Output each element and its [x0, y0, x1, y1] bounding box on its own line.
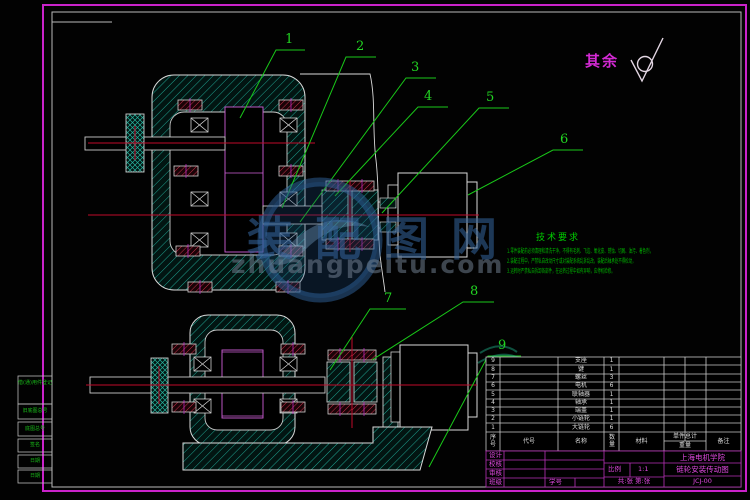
- bom-header-weight-top: 单件总计: [664, 433, 706, 440]
- bom-row: 1 大链轮 6: [0, 424, 750, 432]
- bom-name: 支座: [558, 357, 604, 365]
- bom-name: 小链轮: [558, 415, 604, 423]
- titleblock-school: 上海电机学院: [664, 453, 741, 462]
- bom-header-weight-bottom: 重量: [664, 442, 706, 449]
- titleblock-sheet-note: 共:张 第:张: [604, 477, 664, 486]
- bom-qty: 1: [604, 357, 619, 365]
- bom-name: 端盖: [558, 407, 604, 415]
- bom-qty: 1: [604, 407, 619, 415]
- bom-qty: 1: [604, 399, 619, 407]
- bom-row: 9 支座 1: [0, 357, 750, 365]
- surface-roughness-icon: [631, 38, 663, 81]
- bom-name: 电机: [558, 382, 604, 390]
- bom-header-seq: 序号: [489, 434, 497, 448]
- bom-header-material: 材料: [619, 438, 664, 445]
- bom-row: 4 轴承 1: [0, 399, 750, 407]
- titleblock-scale-label: 比例: [608, 465, 621, 474]
- bom-seq: 2: [486, 415, 500, 423]
- tech-requirements-title: 技术要求: [536, 230, 580, 243]
- balloon-2: 2: [356, 39, 364, 54]
- balloon-1: 1: [285, 32, 293, 47]
- tech-requirement-line: 3.运转时严禁私自拆卸各部件，在运转过程中如有异响，应停机检修。: [507, 267, 615, 277]
- bom-seq: 1: [486, 424, 500, 432]
- left-tab-date-2: 日期: [18, 473, 52, 479]
- bom-seq: 4: [486, 399, 500, 407]
- titleblock-student-label: 学号: [549, 478, 562, 487]
- bom-row: 3 端盖 1: [0, 407, 750, 415]
- titleblock-scale-value: 1:1: [638, 465, 648, 474]
- bom-seq: 9: [486, 357, 500, 365]
- bom-name: 联轴器: [558, 391, 604, 399]
- cad-sheet: 装配图网 zhuangpeitu.com 1 2 3 4 5 6 7 8 9 其…: [0, 0, 750, 500]
- surface-note: 其余: [585, 50, 619, 71]
- bom-name: 键: [558, 366, 604, 374]
- titleblock-check-label: 校核: [489, 460, 502, 469]
- balloon-4: 4: [424, 89, 432, 104]
- bom-row: 2 小链轮 1: [0, 415, 750, 423]
- bom-qty: 1: [604, 415, 619, 423]
- bom-qty: 6: [604, 424, 619, 432]
- bom-header-qty: 数量: [608, 434, 616, 448]
- bom-qty: 3: [604, 374, 619, 382]
- bom-seq: 6: [486, 382, 500, 390]
- tech-requirement-line: 1.零件装配前必须清理和清洗干净，不得有毛刺、飞边、氧化皮、锈蚀、切屑、油污、着…: [507, 247, 653, 257]
- left-tab-date-1: 日期: [18, 458, 52, 464]
- bom-seq: 3: [486, 407, 500, 415]
- balloon-8: 8: [470, 284, 478, 299]
- titleblock-drawing-no: JCJ-00: [664, 477, 741, 486]
- bom-seq: 8: [486, 366, 500, 374]
- titleblock-class-label: 班级: [489, 478, 502, 487]
- left-tab-signature: 签名: [18, 442, 52, 448]
- bom-row: 8 键 1: [0, 366, 750, 374]
- balloon-6: 6: [560, 132, 568, 147]
- bom-header-note: 备注: [706, 438, 741, 445]
- balloon-5: 5: [486, 90, 494, 105]
- bom-row: 6 电机 6: [0, 382, 750, 390]
- bom-seq: 7: [486, 374, 500, 382]
- titleblock-audit-label: 审核: [489, 469, 502, 478]
- tech-requirement-line: 2.装配过程中，严禁私自改动尺寸或对装配系统乱拆乱改，装配后轴承处不得松动，: [507, 257, 636, 267]
- bom-row: 5 联轴器 1: [0, 391, 750, 399]
- watermark-url-text: zhuangpeitu.com: [231, 250, 504, 279]
- bom-seq: 5: [486, 391, 500, 399]
- bom-qty: 1: [604, 366, 619, 374]
- bom-name: 轴承: [558, 399, 604, 407]
- bom-header-code: 代号: [500, 438, 558, 445]
- bom-qty: 6: [604, 382, 619, 390]
- bom-name: 螺丝: [558, 374, 604, 382]
- balloon-7: 7: [384, 291, 392, 306]
- titleblock-drawing-title: 链轮安装传动图: [664, 465, 741, 474]
- bom-name: 大链轮: [558, 424, 604, 432]
- bom-qty: 1: [604, 391, 619, 399]
- balloon-9: 9: [498, 338, 506, 353]
- titleblock-design-label: 设计: [489, 451, 502, 460]
- bom-row: 7 螺丝 3: [0, 374, 750, 382]
- bom-header-name: 名称: [558, 438, 604, 445]
- balloon-3: 3: [411, 60, 419, 75]
